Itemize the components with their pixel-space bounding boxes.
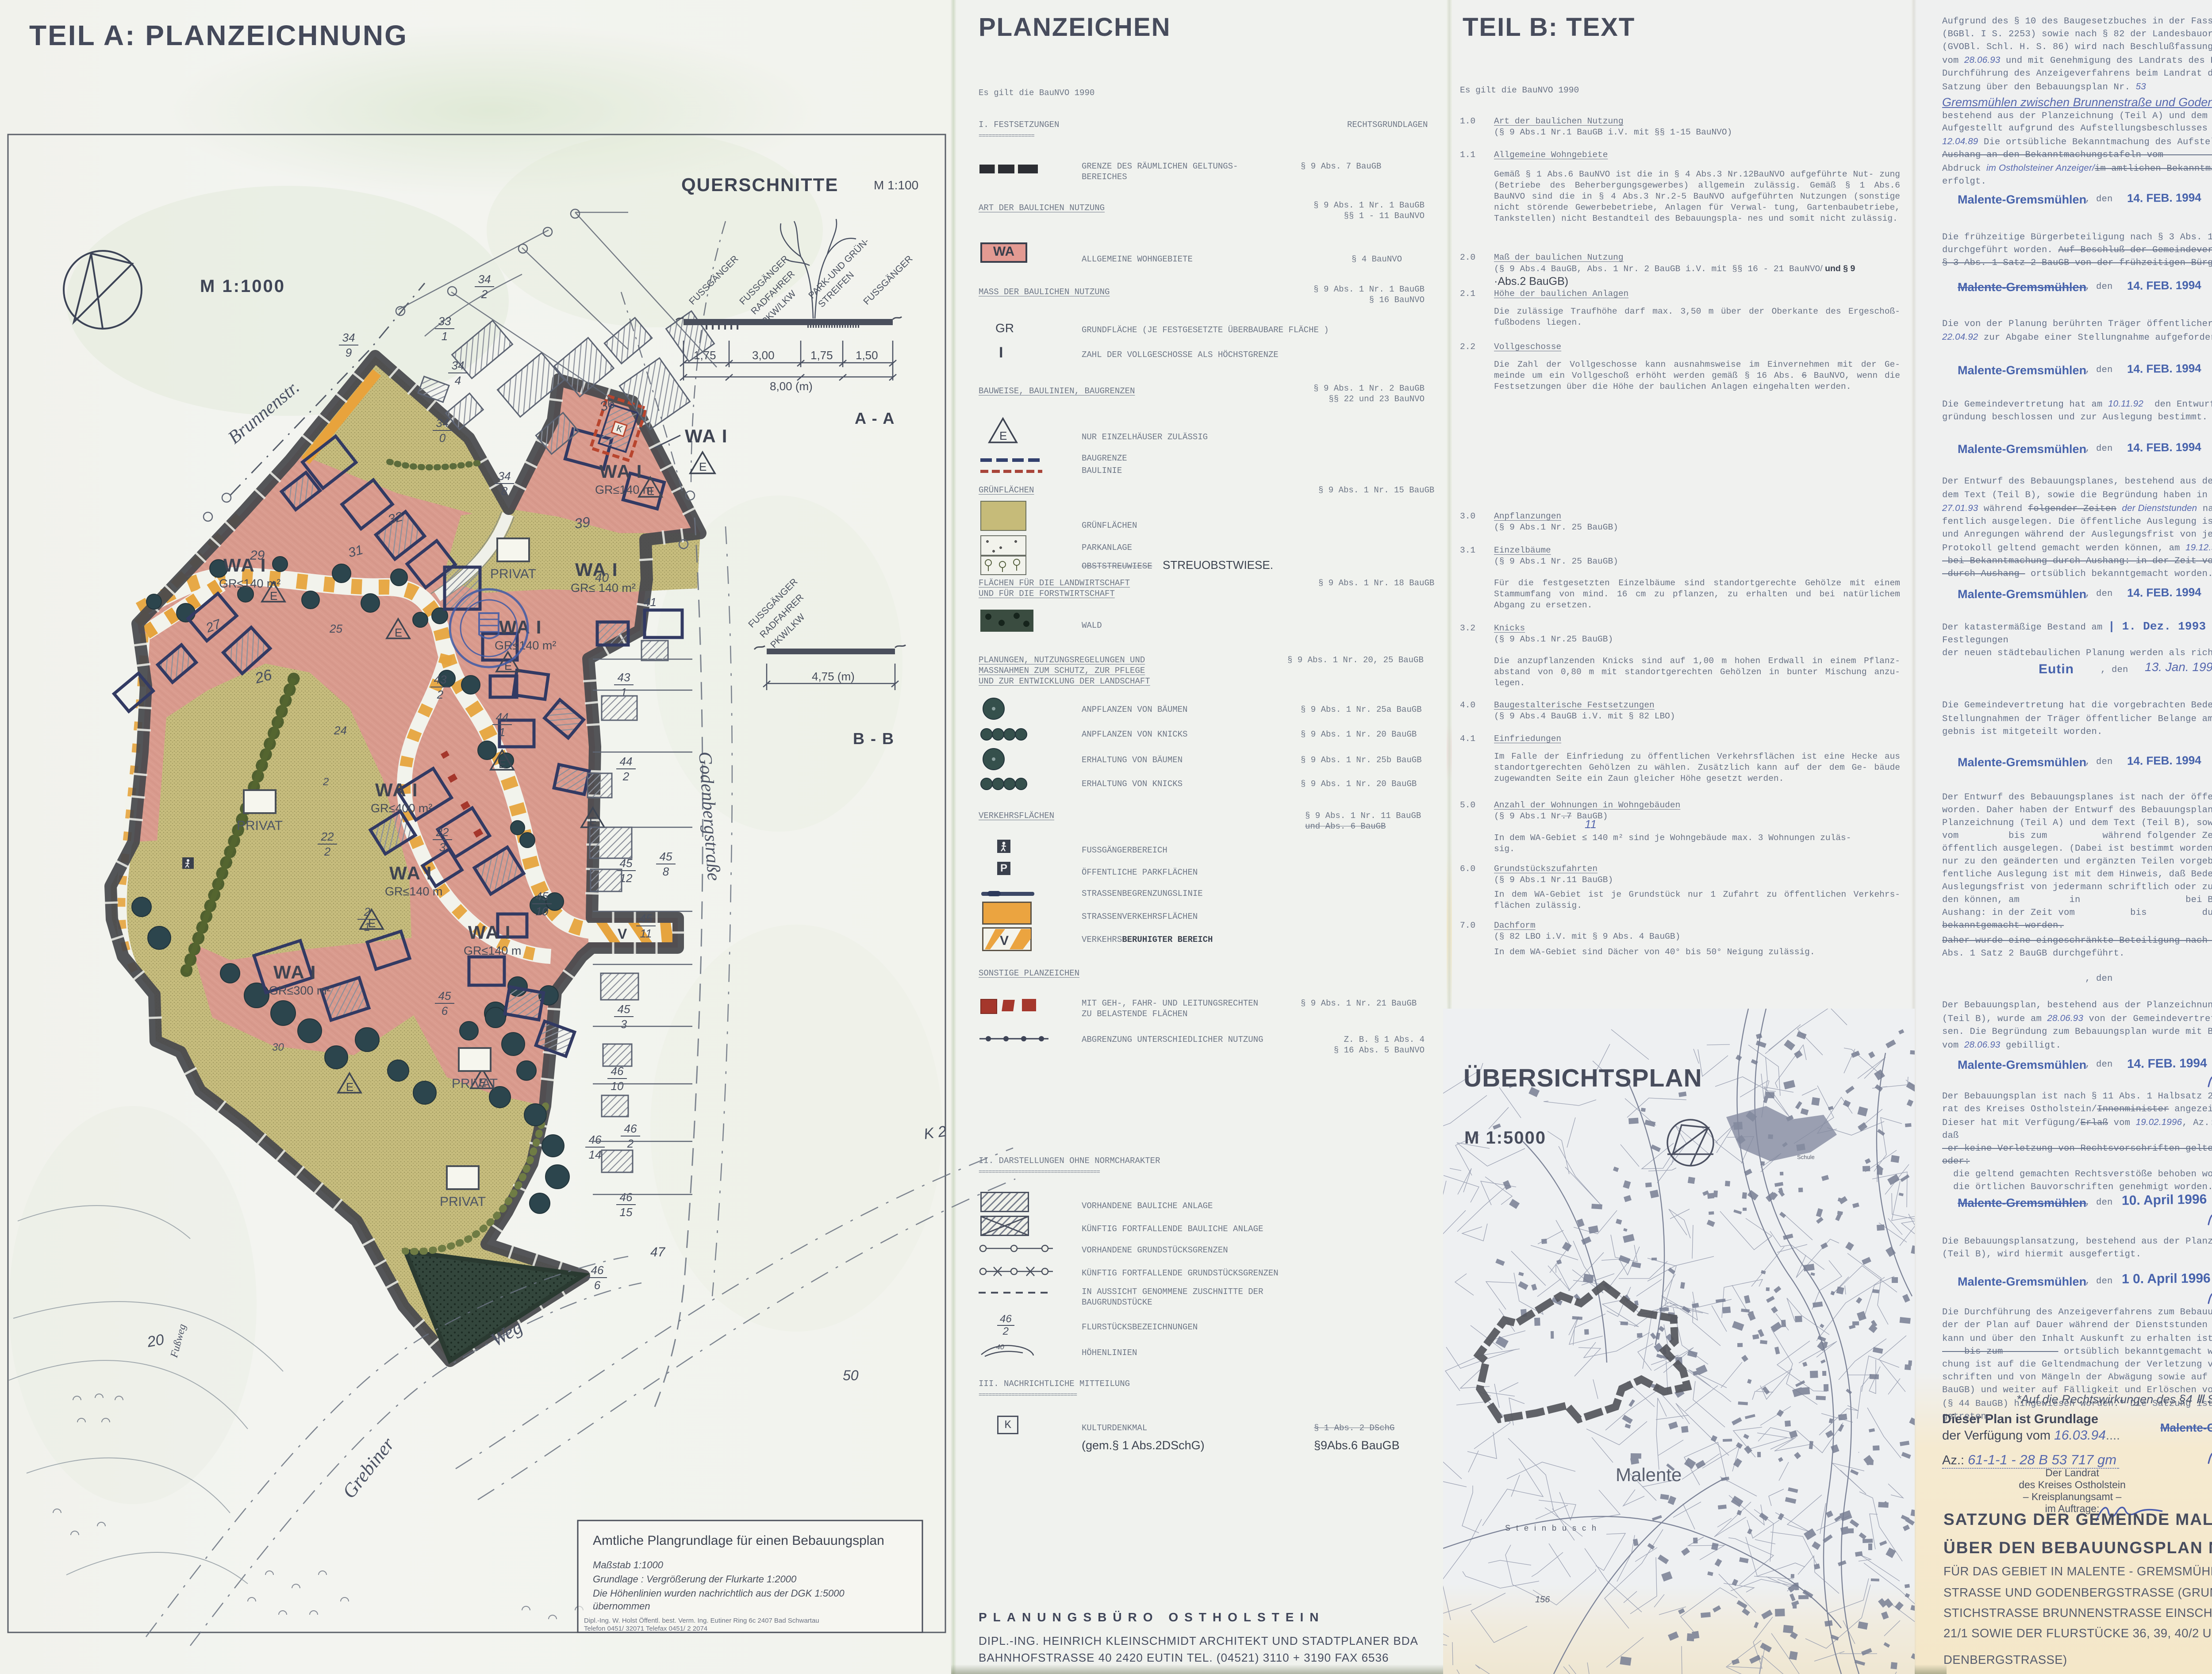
svg-text:PRIVAT: PRIVAT xyxy=(440,1194,486,1209)
svg-text:K 2: K 2 xyxy=(923,1123,948,1143)
svg-text:4: 4 xyxy=(455,374,461,387)
svg-text:45: 45 xyxy=(536,890,549,903)
svg-text:WA I: WA I xyxy=(389,863,432,883)
svg-text:14: 14 xyxy=(589,1148,602,1161)
svg-text:4,75 (m): 4,75 (m) xyxy=(812,670,855,683)
svg-text:24: 24 xyxy=(334,724,347,737)
svg-text:GR≤140 m: GR≤140 m xyxy=(385,885,442,898)
svg-text:E: E xyxy=(395,626,402,639)
svg-text:40: 40 xyxy=(595,571,609,584)
svg-text:3: 3 xyxy=(439,841,446,854)
svg-text:34: 34 xyxy=(498,469,511,483)
svg-text:GR≤400 m²: GR≤400 m² xyxy=(371,802,432,815)
svg-text:TEIL A: PLANZEICHNUNG: TEIL A: PLANZEICHNUNG xyxy=(29,19,408,51)
svg-text:33: 33 xyxy=(438,315,451,328)
svg-text:46: 46 xyxy=(591,1263,604,1277)
svg-text:25: 25 xyxy=(329,622,342,635)
svg-text:Maßstab 1:1000: Maßstab 1:1000 xyxy=(593,1559,664,1570)
svg-text:1: 1 xyxy=(364,920,370,933)
svg-text:0: 0 xyxy=(439,431,446,445)
svg-text:PRIVAT: PRIVAT xyxy=(490,567,536,581)
svg-text:8: 8 xyxy=(663,865,669,878)
svg-text:GR≤140 m: GR≤140 m xyxy=(464,944,521,957)
svg-text:22: 22 xyxy=(321,830,334,843)
svg-text:V: V xyxy=(618,926,627,942)
svg-text:WA I: WA I xyxy=(599,461,642,482)
svg-text:PRIVAT: PRIVAT xyxy=(237,818,283,833)
svg-text:10: 10 xyxy=(611,1079,624,1093)
svg-text:46: 46 xyxy=(624,1122,637,1135)
svg-text:E: E xyxy=(270,589,277,603)
svg-text:1: 1 xyxy=(442,330,448,343)
svg-text:43: 43 xyxy=(618,671,630,684)
svg-text:GR≤140 m: GR≤140 m xyxy=(595,483,653,496)
svg-text:2: 2 xyxy=(437,688,444,701)
svg-text:50: 50 xyxy=(843,1367,859,1383)
svg-text:GR≤140 m²: GR≤140 m² xyxy=(219,577,280,590)
svg-text:Malente: Malente xyxy=(1616,1464,1682,1485)
svg-text:Dipl.-Ing. W. Holst Öffentl.: Dipl.-Ing. W. Holst Öffentl. best. Verm.… xyxy=(584,1616,819,1624)
svg-text:PRIVAT: PRIVAT xyxy=(452,1076,498,1091)
svg-text:46: 46 xyxy=(620,1190,633,1204)
svg-text:1: 1 xyxy=(499,726,505,739)
svg-text:2: 2 xyxy=(323,776,329,788)
svg-text:Amtliche Plangrundlage für e: Amtliche Plangrundlage für einen Bebauun… xyxy=(593,1533,884,1548)
svg-text:2: 2 xyxy=(364,905,371,918)
svg-text:45: 45 xyxy=(438,989,451,1002)
svg-text:WA I: WA I xyxy=(273,962,316,983)
svg-text:10: 10 xyxy=(536,905,549,918)
svg-text:1,50: 1,50 xyxy=(856,349,878,362)
svg-text:22: 22 xyxy=(436,825,449,839)
svg-text:34: 34 xyxy=(478,273,491,286)
svg-text:A - A: A - A xyxy=(855,409,895,427)
svg-text:29: 29 xyxy=(250,548,265,563)
svg-text:44: 44 xyxy=(620,755,633,768)
svg-text:8,00 (m): 8,00 (m) xyxy=(770,380,813,393)
svg-text:6: 6 xyxy=(442,1004,448,1017)
svg-text:GR≤300 m²: GR≤300 m² xyxy=(269,984,330,997)
svg-text:43: 43 xyxy=(434,673,447,686)
svg-text:20: 20 xyxy=(146,1331,165,1351)
svg-text:Grebiner: Grebiner xyxy=(338,1433,399,1502)
svg-text:8: 8 xyxy=(501,484,508,498)
svg-text:2: 2 xyxy=(622,770,630,783)
svg-text:1,75: 1,75 xyxy=(810,349,833,362)
svg-text:2: 2 xyxy=(481,288,488,301)
svg-text:3: 3 xyxy=(621,1017,627,1031)
svg-text:V: V xyxy=(1000,933,1009,948)
svg-text:Grundlage : Vergrößerung der F: Grundlage : Vergrößerung der Flurkarte 1… xyxy=(593,1574,797,1585)
svg-text:34: 34 xyxy=(436,416,449,430)
svg-text:45: 45 xyxy=(660,850,672,863)
svg-text:34: 34 xyxy=(452,359,465,372)
svg-text:übernommen: übernommen xyxy=(593,1601,650,1612)
svg-text:47: 47 xyxy=(650,1245,666,1259)
svg-text:E: E xyxy=(589,815,597,828)
svg-text:1,75: 1,75 xyxy=(694,349,716,362)
svg-text:E: E xyxy=(346,1080,353,1094)
svg-text:46: 46 xyxy=(589,1133,602,1146)
svg-text:B - B: B - B xyxy=(853,729,895,748)
svg-text:45: 45 xyxy=(618,1002,630,1016)
svg-text:QUERSCHNITTE: QUERSCHNITTE xyxy=(681,174,838,195)
svg-text:FUSSGÄNGER: FUSSGÄNGER xyxy=(861,253,914,307)
svg-text:M 1:1000: M 1:1000 xyxy=(200,276,285,296)
svg-text:30: 30 xyxy=(272,1041,284,1053)
svg-text:Die Höhenlinien wurden nachri: Die Höhenlinien wurden nachrichtlich aus… xyxy=(593,1588,845,1599)
svg-text:S t e i n b u s c h: S t e i n b u s c h xyxy=(1505,1524,1598,1532)
svg-text:41: 41 xyxy=(644,595,657,609)
svg-text:WA I: WA I xyxy=(468,922,511,943)
svg-text:15: 15 xyxy=(620,1206,633,1219)
svg-text:11: 11 xyxy=(640,927,652,940)
svg-text:M 1:100: M 1:100 xyxy=(874,178,918,192)
svg-text:2: 2 xyxy=(324,845,331,858)
svg-text:Schule: Schule xyxy=(1797,1154,1815,1160)
svg-text:6: 6 xyxy=(594,1279,601,1292)
svg-text:2: 2 xyxy=(627,1137,634,1150)
svg-text:9: 9 xyxy=(346,346,352,359)
svg-text:E: E xyxy=(499,757,506,771)
svg-text:39: 39 xyxy=(573,514,591,532)
svg-text:WA I: WA I xyxy=(499,617,542,637)
svg-text:WA I: WA I xyxy=(685,426,728,446)
svg-text:E: E xyxy=(699,460,707,473)
svg-text:40: 40 xyxy=(996,1344,1004,1351)
svg-text:WA I: WA I xyxy=(375,779,418,800)
svg-text:44: 44 xyxy=(496,710,509,724)
svg-text:3,00: 3,00 xyxy=(752,349,775,362)
svg-text:45: 45 xyxy=(640,912,653,925)
svg-text:Telefon 0451/ 32071 Tel: Telefon 0451/ 32071 Telefax 0451/ 2 2074 xyxy=(584,1625,707,1632)
svg-text:34: 34 xyxy=(342,331,355,344)
svg-text:156: 156 xyxy=(1535,1595,1550,1605)
